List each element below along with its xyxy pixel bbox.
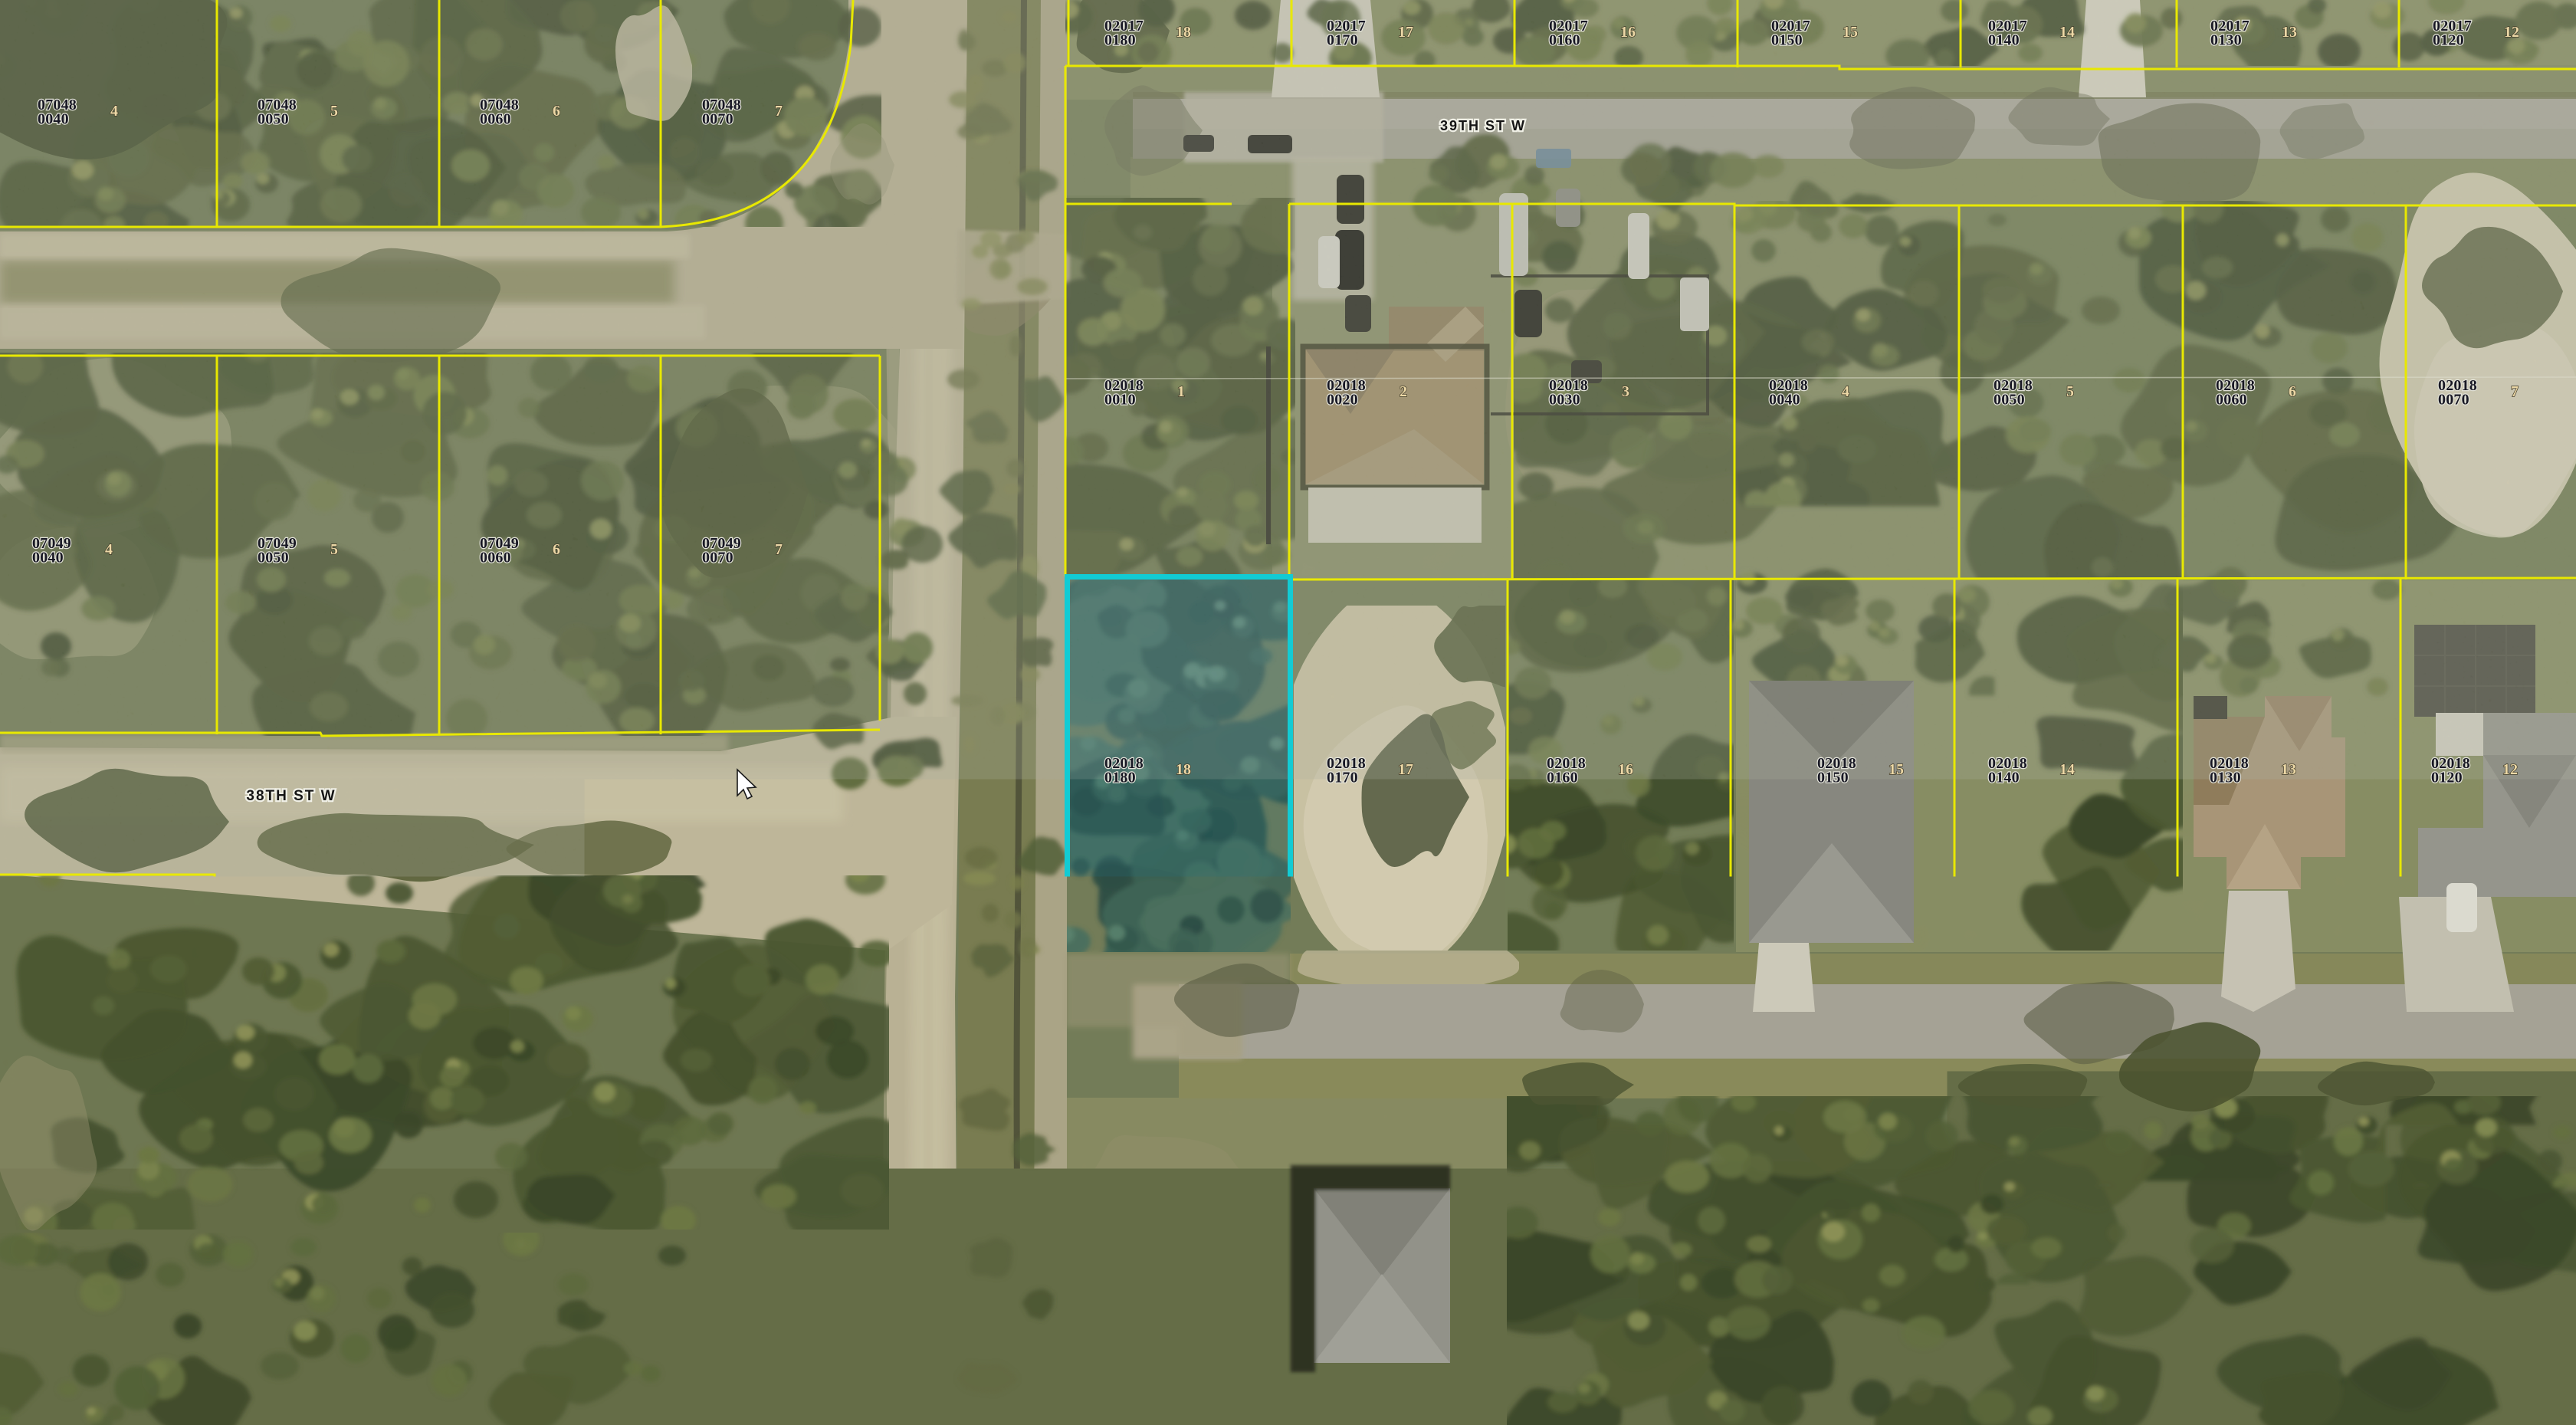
svg-text:3: 3 [1622, 383, 1629, 400]
svg-text:7: 7 [775, 103, 783, 120]
svg-text:2: 2 [1400, 383, 1407, 400]
svg-text:7: 7 [2504, 1254, 2512, 1271]
svg-text:6: 6 [553, 103, 560, 120]
svg-text:3: 3 [1616, 1254, 1623, 1271]
svg-text:4: 4 [100, 1056, 107, 1073]
svg-text:7: 7 [775, 541, 783, 558]
svg-text:1: 1 [1175, 1254, 1183, 1271]
svg-text:2: 2 [1396, 1254, 1404, 1271]
svg-text:8: 8 [766, 1344, 773, 1361]
svg-text:15: 15 [1843, 24, 1858, 41]
svg-text:18: 18 [1176, 761, 1191, 778]
svg-text:4: 4 [105, 541, 113, 558]
svg-text:13: 13 [2281, 761, 2296, 778]
svg-text:6: 6 [2289, 383, 2296, 400]
svg-text:39TH ST W: 39TH ST W [1440, 118, 1526, 133]
svg-text:15: 15 [1889, 761, 1904, 778]
svg-text:4: 4 [1842, 383, 1849, 400]
svg-text:5: 5 [330, 541, 338, 558]
svg-text:4: 4 [110, 103, 118, 120]
svg-text:6: 6 [553, 541, 560, 558]
svg-text:5: 5 [2059, 1254, 2067, 1271]
svg-text:13: 13 [2282, 24, 2297, 41]
svg-text:12: 12 [2502, 761, 2518, 778]
svg-text:9: 9 [546, 1344, 554, 1361]
svg-text:5: 5 [323, 1056, 330, 1073]
svg-text:5: 5 [2066, 383, 2074, 400]
svg-text:7: 7 [2511, 383, 2519, 400]
svg-text:14: 14 [2059, 761, 2075, 778]
svg-text:18: 18 [1176, 24, 1191, 41]
svg-text:16: 16 [1620, 24, 1636, 41]
svg-text:12: 12 [2504, 24, 2519, 41]
svg-text:38TH ST W: 38TH ST W [2521, 1003, 2576, 1018]
svg-text:4: 4 [1872, 1254, 1880, 1271]
svg-text:38TH ST W: 38TH ST W [246, 788, 336, 804]
svg-text:38TH ST W: 38TH ST W [2138, 1015, 2224, 1030]
svg-text:17: 17 [1398, 761, 1413, 778]
svg-text:16: 16 [1618, 761, 1633, 778]
svg-text:5: 5 [330, 103, 338, 120]
svg-text:6: 6 [546, 1056, 553, 1073]
svg-text:7: 7 [766, 1056, 773, 1073]
svg-text:17: 17 [1398, 24, 1413, 41]
svg-text:14: 14 [2059, 24, 2075, 41]
svg-text:11: 11 [98, 1344, 113, 1361]
svg-text:6: 6 [2282, 1254, 2289, 1271]
svg-text:1: 1 [1177, 383, 1185, 400]
